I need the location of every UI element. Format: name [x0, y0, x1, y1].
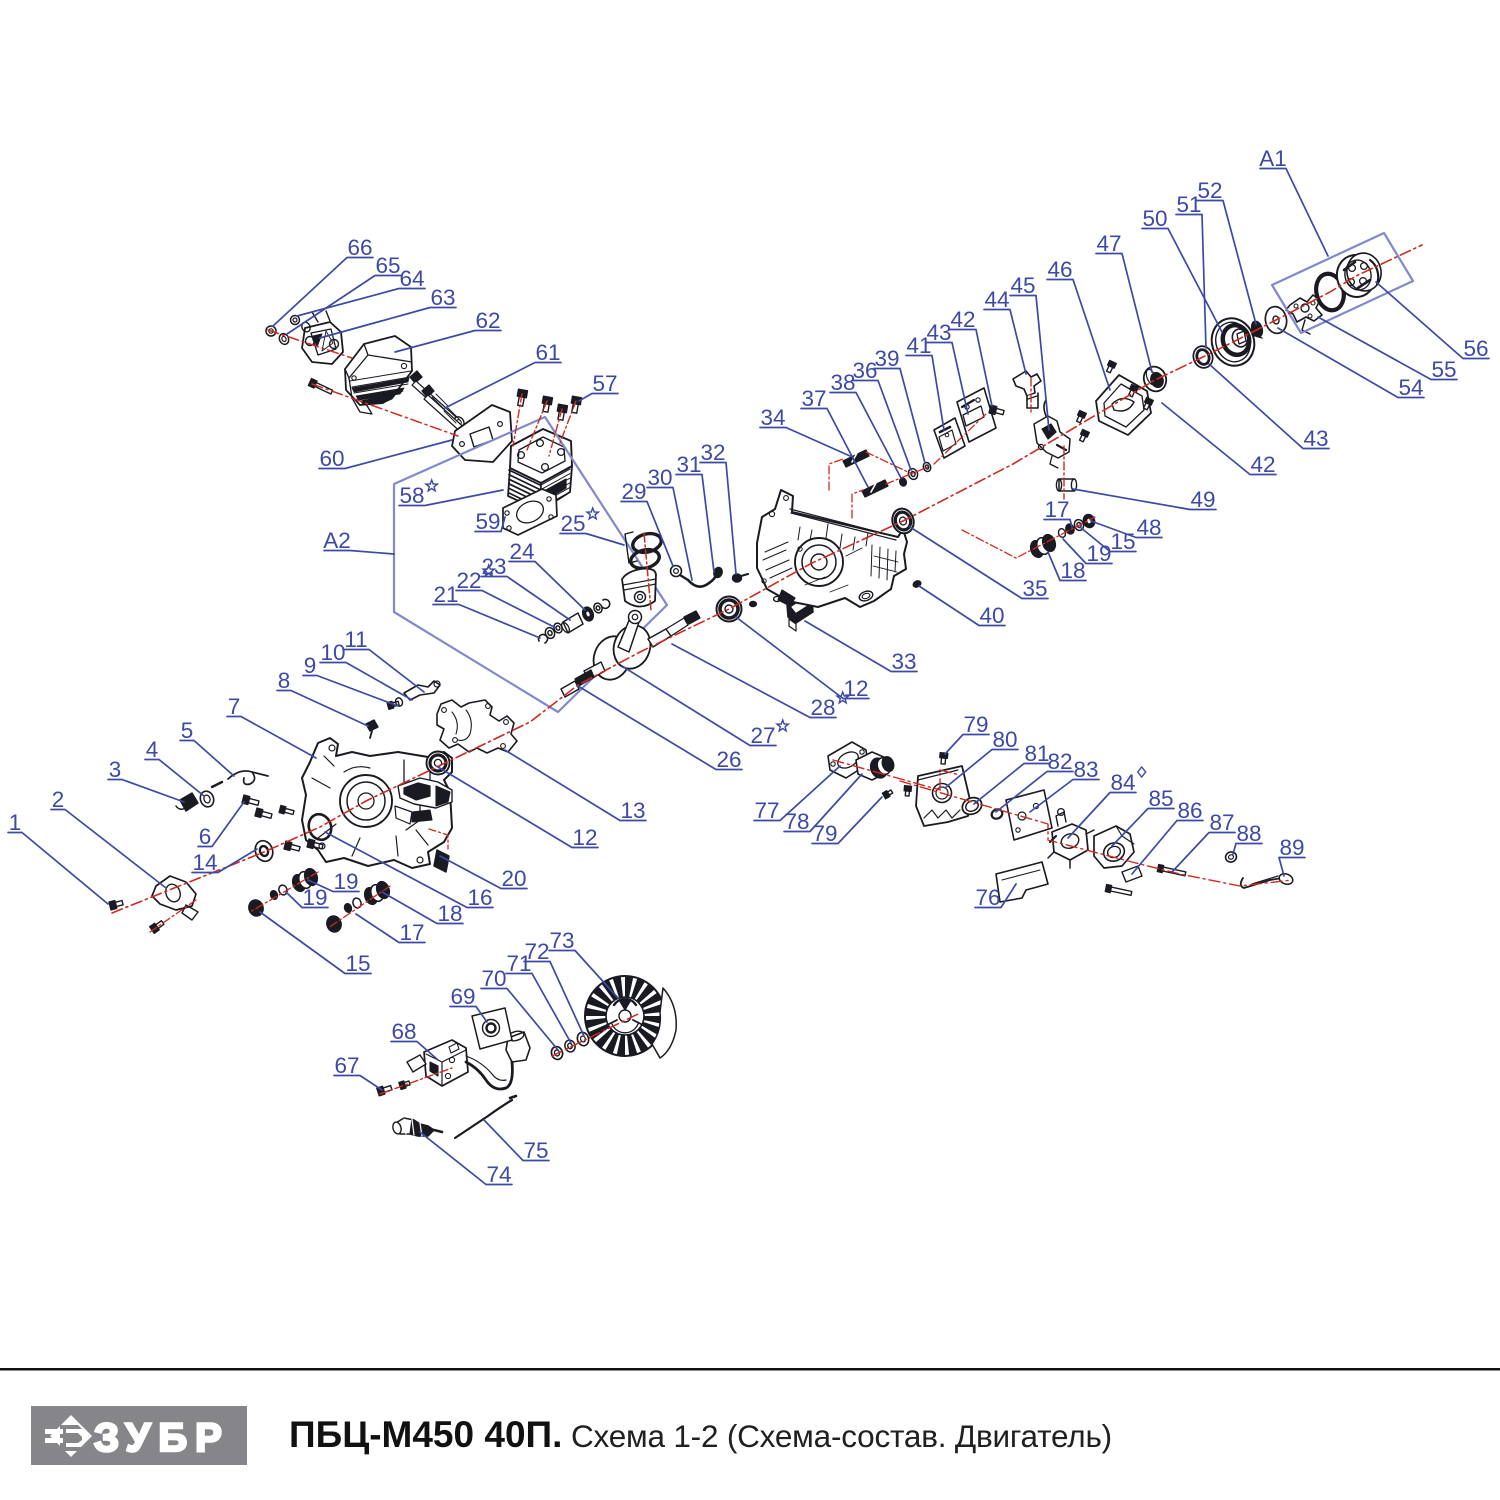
svg-text:81: 81 — [1024, 741, 1049, 766]
svg-text:31: 31 — [676, 452, 701, 477]
svg-text:12: 12 — [572, 825, 597, 850]
svg-text:74: 74 — [486, 1162, 511, 1187]
svg-text:ПБЦ-М450 40П. Схема 1-2 (Схема: ПБЦ-М450 40П. Схема 1-2 (Схема-состав. Д… — [289, 1414, 1112, 1455]
svg-text:47: 47 — [1096, 231, 1121, 256]
svg-text:46: 46 — [1047, 257, 1072, 282]
svg-text:57: 57 — [592, 371, 617, 396]
svg-text:34: 34 — [760, 405, 785, 430]
svg-text:4: 4 — [146, 737, 159, 762]
svg-text:55: 55 — [1431, 357, 1456, 382]
svg-text:18: 18 — [437, 901, 462, 926]
svg-text:27: 27 — [750, 723, 775, 748]
svg-text:48: 48 — [1136, 515, 1161, 540]
svg-text:25: 25 — [560, 511, 585, 536]
svg-text:78: 78 — [784, 809, 809, 834]
svg-text:79: 79 — [963, 712, 988, 737]
svg-text:56: 56 — [1463, 336, 1488, 361]
svg-text:37: 37 — [801, 386, 826, 411]
svg-text:65: 65 — [375, 253, 400, 278]
svg-text:85: 85 — [1148, 786, 1173, 811]
svg-text:3: 3 — [109, 757, 122, 782]
svg-text:79: 79 — [812, 821, 837, 846]
svg-text:39: 39 — [874, 346, 899, 371]
svg-text:A1: A1 — [1259, 146, 1287, 171]
svg-text:32: 32 — [700, 440, 725, 465]
svg-text:16: 16 — [467, 885, 492, 910]
svg-text:42: 42 — [950, 307, 975, 332]
svg-text:19: 19 — [333, 869, 358, 894]
svg-text:77: 77 — [754, 798, 779, 823]
svg-text:28: 28 — [810, 695, 835, 720]
svg-text:2: 2 — [52, 787, 65, 812]
svg-text:17: 17 — [399, 920, 424, 945]
svg-text:52: 52 — [1197, 178, 1222, 203]
svg-text:64: 64 — [399, 266, 424, 291]
svg-text:49: 49 — [1190, 487, 1215, 512]
svg-text:21: 21 — [433, 582, 458, 607]
svg-text:40: 40 — [979, 603, 1004, 628]
svg-text:88: 88 — [1236, 821, 1261, 846]
svg-text:63: 63 — [430, 285, 455, 310]
svg-text:8: 8 — [278, 668, 291, 693]
svg-text:62: 62 — [475, 308, 500, 333]
svg-text:68: 68 — [391, 1019, 416, 1044]
svg-text:86: 86 — [1177, 798, 1202, 823]
svg-text:9: 9 — [304, 653, 317, 678]
svg-text:22: 22 — [456, 568, 481, 593]
svg-text:A2: A2 — [323, 528, 351, 553]
svg-text:45: 45 — [1010, 273, 1035, 298]
svg-text:50: 50 — [1142, 206, 1167, 231]
svg-text:19: 19 — [302, 885, 327, 910]
svg-text:83: 83 — [1073, 757, 1098, 782]
svg-text:89: 89 — [1279, 835, 1304, 860]
svg-text:1: 1 — [9, 810, 22, 835]
svg-text:69: 69 — [450, 984, 475, 1009]
svg-text:71: 71 — [506, 951, 531, 976]
svg-text:13: 13 — [620, 798, 645, 823]
svg-text:5: 5 — [181, 718, 194, 743]
svg-text:18: 18 — [1060, 558, 1085, 583]
svg-text:70: 70 — [481, 966, 506, 991]
svg-text:76: 76 — [975, 885, 1000, 910]
svg-text:35: 35 — [1022, 576, 1047, 601]
svg-text:60: 60 — [319, 446, 344, 471]
svg-text:26: 26 — [716, 747, 741, 772]
svg-text:15: 15 — [345, 951, 370, 976]
svg-text:73: 73 — [549, 928, 574, 953]
svg-text:17: 17 — [1044, 497, 1069, 522]
svg-text:54: 54 — [1398, 375, 1423, 400]
svg-text:24: 24 — [509, 539, 534, 564]
svg-text:87: 87 — [1209, 810, 1234, 835]
svg-text:84: 84 — [1110, 770, 1135, 795]
svg-text:ЗУБР: ЗУБР — [94, 1416, 230, 1460]
svg-text:61: 61 — [535, 340, 560, 365]
svg-text:10: 10 — [320, 640, 345, 665]
svg-text:80: 80 — [992, 727, 1017, 752]
svg-text:82: 82 — [1047, 749, 1072, 774]
svg-text:14: 14 — [192, 850, 217, 875]
svg-text:58: 58 — [399, 483, 424, 508]
svg-text:43: 43 — [1303, 426, 1328, 451]
svg-text:59: 59 — [475, 509, 500, 534]
svg-text:7: 7 — [228, 694, 241, 719]
svg-text:33: 33 — [891, 649, 916, 674]
svg-text:29: 29 — [621, 479, 646, 504]
svg-text:67: 67 — [334, 1053, 359, 1078]
svg-text:20: 20 — [501, 866, 526, 891]
svg-text:44: 44 — [984, 287, 1009, 312]
svg-text:19: 19 — [1086, 541, 1111, 566]
svg-text:43: 43 — [926, 320, 951, 345]
svg-text:42: 42 — [1250, 452, 1275, 477]
svg-text:66: 66 — [347, 235, 372, 260]
svg-text:75: 75 — [523, 1138, 548, 1163]
svg-text:15: 15 — [1110, 529, 1135, 554]
svg-text:6: 6 — [199, 824, 212, 849]
svg-text:11: 11 — [344, 627, 367, 652]
svg-text:30: 30 — [647, 465, 672, 490]
